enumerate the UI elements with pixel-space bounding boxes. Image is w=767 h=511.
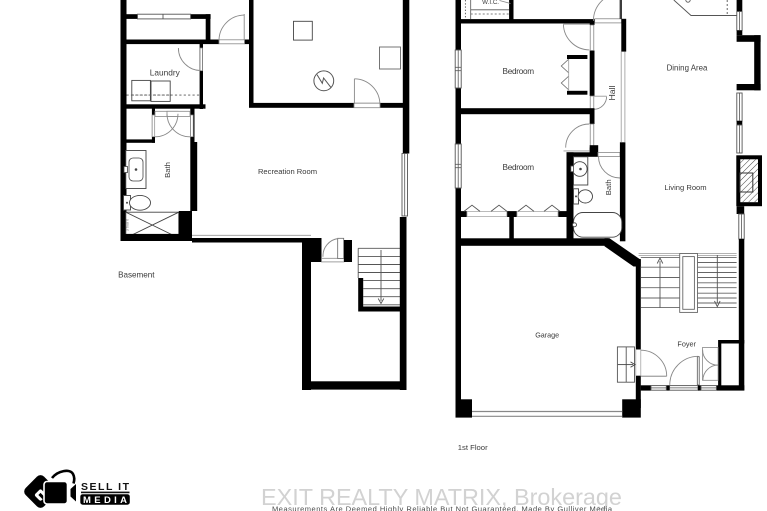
- svg-text:Basement: Basement: [118, 271, 155, 280]
- svg-text:Measurements Are Deemed Highly: Measurements Are Deemed Highly Reliable …: [272, 504, 613, 511]
- svg-text:Hall: Hall: [607, 85, 617, 100]
- svg-text:W.I.C.: W.I.C.: [482, 0, 499, 6]
- svg-text:Recreation Room: Recreation Room: [258, 167, 317, 176]
- svg-text:Foyer: Foyer: [677, 339, 696, 348]
- svg-text:3'6x8'6: 3'6x8'6: [125, 218, 130, 231]
- svg-text:1st Floor: 1st Floor: [458, 443, 488, 452]
- svg-text:Bath: Bath: [163, 162, 172, 178]
- svg-text:Dining Area: Dining Area: [667, 63, 708, 72]
- svg-text:Laundry: Laundry: [150, 67, 181, 77]
- svg-text:MEDIA: MEDIA: [83, 495, 127, 506]
- svg-text:Garage: Garage: [535, 331, 559, 340]
- svg-text:Bedroom: Bedroom: [503, 67, 535, 76]
- svg-text:Bath: Bath: [604, 179, 613, 195]
- svg-text:Bedroom: Bedroom: [503, 163, 535, 172]
- svg-text:Living Room: Living Room: [664, 183, 706, 192]
